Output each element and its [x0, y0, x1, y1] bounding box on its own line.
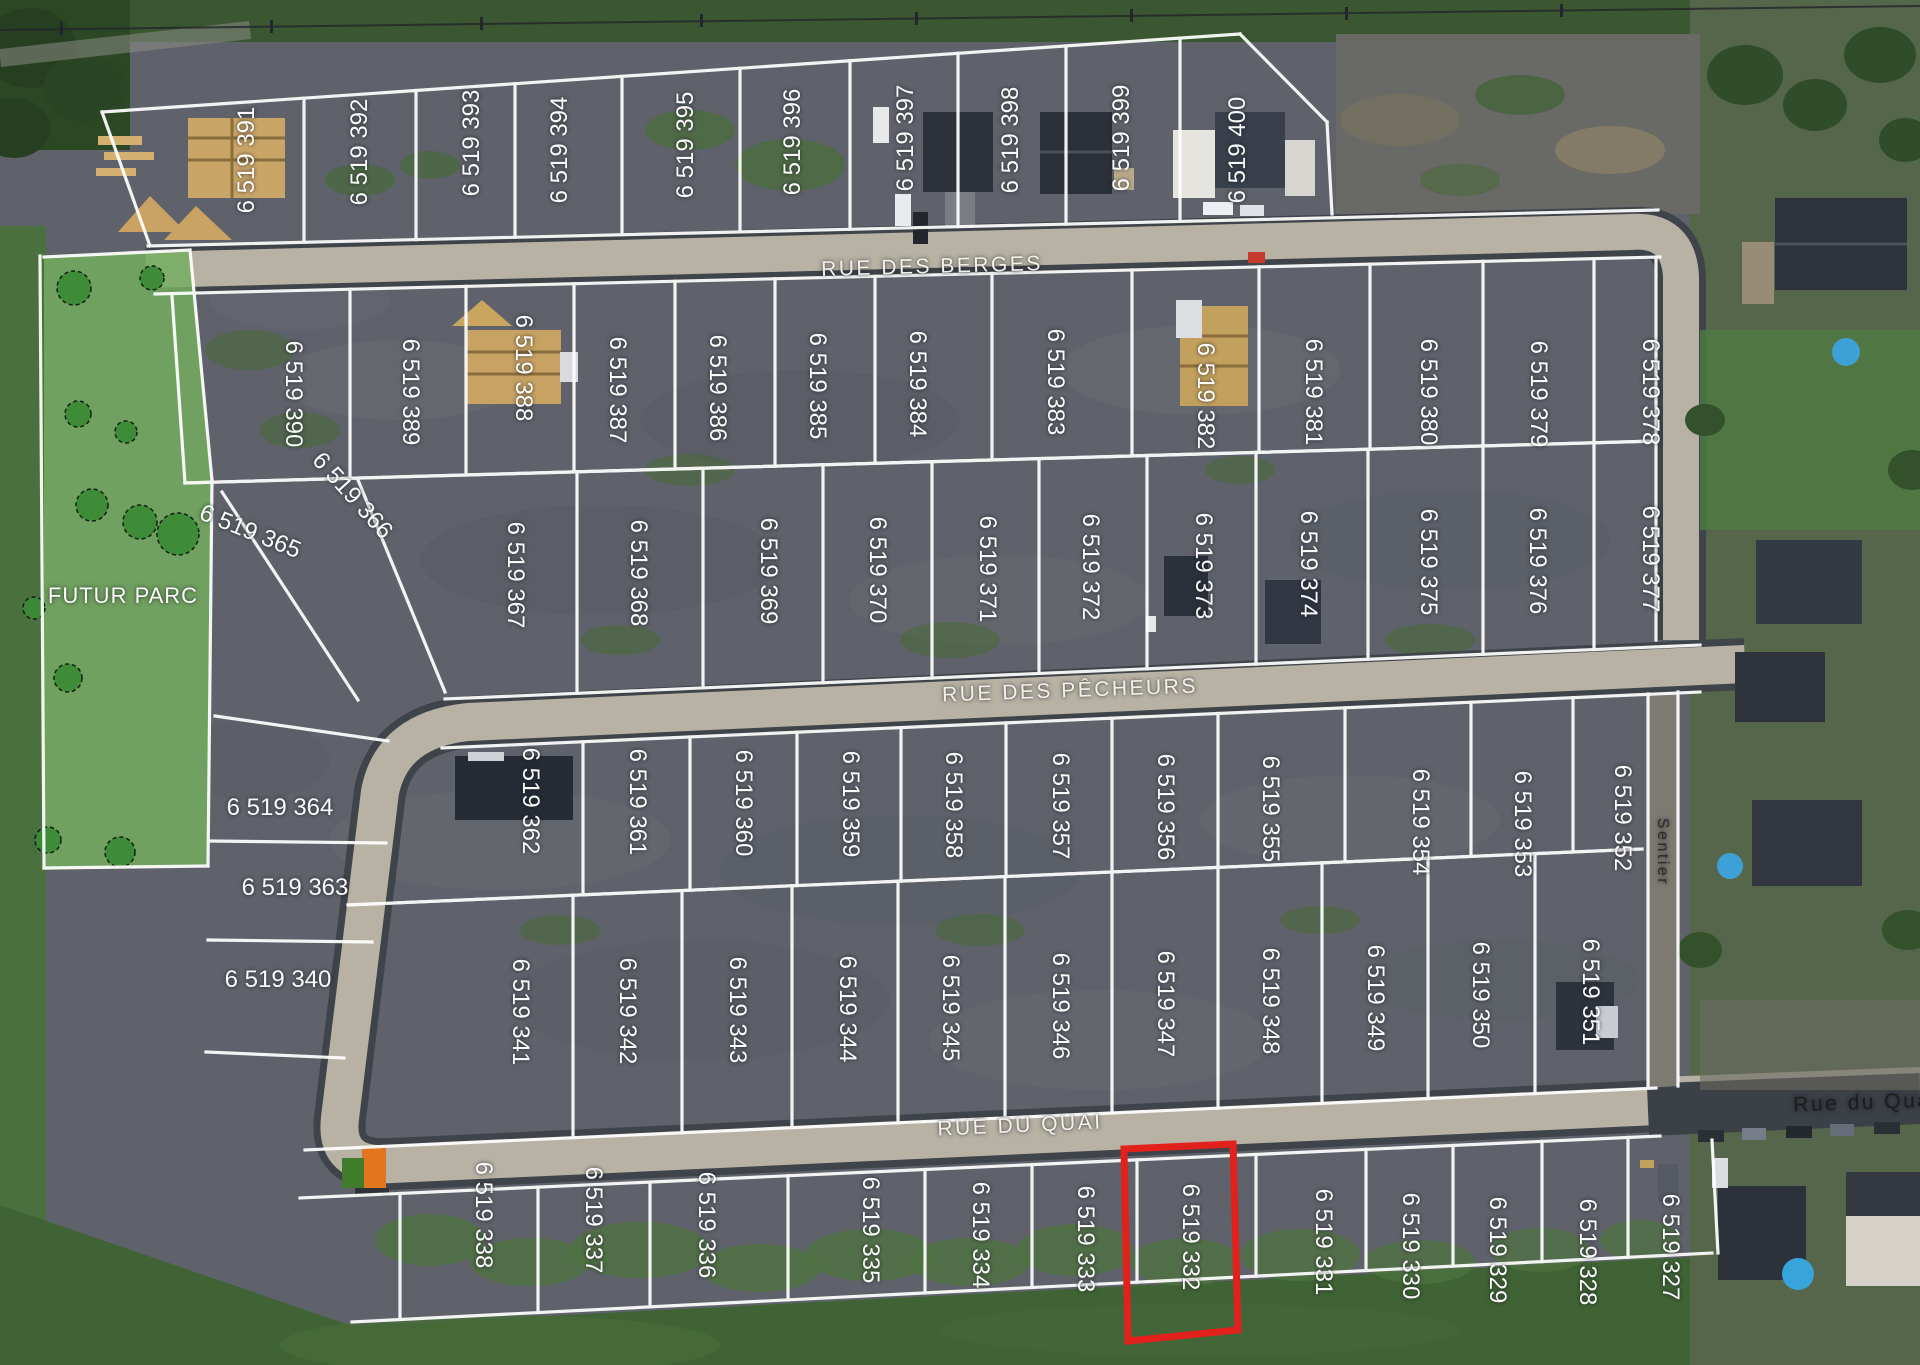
swimming-pool — [1782, 1258, 1814, 1290]
sentier-path — [1648, 692, 1678, 1088]
aerial-subdivision-map: 6 519 3916 519 3926 519 3936 519 3946 51… — [0, 0, 1920, 1365]
white-van — [895, 194, 911, 226]
swimming-pool — [1717, 853, 1743, 879]
construction-frame-388 — [467, 330, 561, 404]
futur-parc-area — [23, 250, 212, 870]
parked-car — [1786, 1126, 1812, 1138]
swimming-pool — [1832, 338, 1860, 366]
house — [1756, 540, 1862, 624]
parked-car — [1742, 1128, 1766, 1140]
truck — [1240, 205, 1264, 216]
truck — [1203, 202, 1233, 215]
building-400-roof — [1215, 112, 1285, 188]
construction-frame-391 — [188, 118, 285, 198]
house-roof — [1846, 1172, 1920, 1216]
road-rue-du-quai-existing — [1648, 1098, 1920, 1110]
house — [1735, 652, 1825, 722]
rv-trailer — [873, 107, 889, 143]
house-374 — [1265, 580, 1321, 644]
house — [1752, 800, 1862, 886]
parked-car — [1874, 1122, 1900, 1134]
map-graphics — [0, 0, 1920, 1365]
tractor — [342, 1158, 364, 1188]
trailer-327 — [1658, 1164, 1678, 1202]
parked-car — [1830, 1124, 1854, 1136]
red-equipment — [1248, 252, 1265, 263]
house-373 — [1164, 556, 1208, 616]
house-362 — [455, 756, 573, 820]
excavator — [362, 1146, 386, 1194]
